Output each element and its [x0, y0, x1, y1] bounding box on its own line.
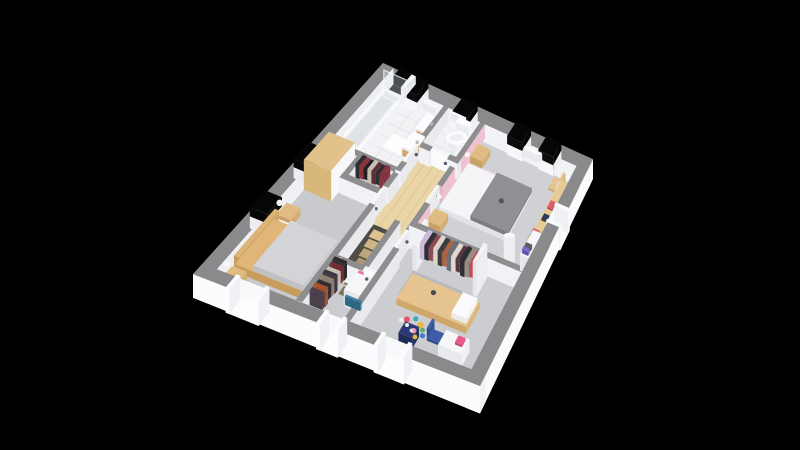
master-wall-sconce-1 — [276, 200, 282, 206]
vanity-faucet-1 — [429, 122, 433, 126]
toy-9 — [399, 318, 404, 323]
toy-cube-sticker-1 — [405, 323, 409, 327]
toy-6 — [420, 328, 425, 333]
toy-cube-sticker-2 — [410, 328, 414, 332]
toy-8 — [420, 333, 425, 338]
door-wc-handle — [444, 162, 447, 165]
pink-wall-sconce-1 — [465, 152, 470, 157]
door-nursery-handle — [365, 277, 368, 280]
door-bathroom-handle — [415, 153, 418, 156]
toilet-bowl-inner — [450, 134, 464, 142]
toy-10 — [413, 335, 418, 340]
pink-wall-sconce-2 — [437, 194, 442, 199]
floorplan-stage — [0, 0, 800, 450]
kids-bed-button — [431, 290, 436, 295]
master-wall-sconce-2 — [224, 260, 230, 266]
vanity-faucet-2 — [415, 140, 419, 144]
door-kids-bedroom-handle — [405, 240, 408, 243]
floorplan-3d-render — [0, 0, 800, 450]
toy-1 — [404, 316, 410, 322]
pink-bed-button — [499, 198, 504, 203]
toy-2 — [413, 316, 418, 321]
